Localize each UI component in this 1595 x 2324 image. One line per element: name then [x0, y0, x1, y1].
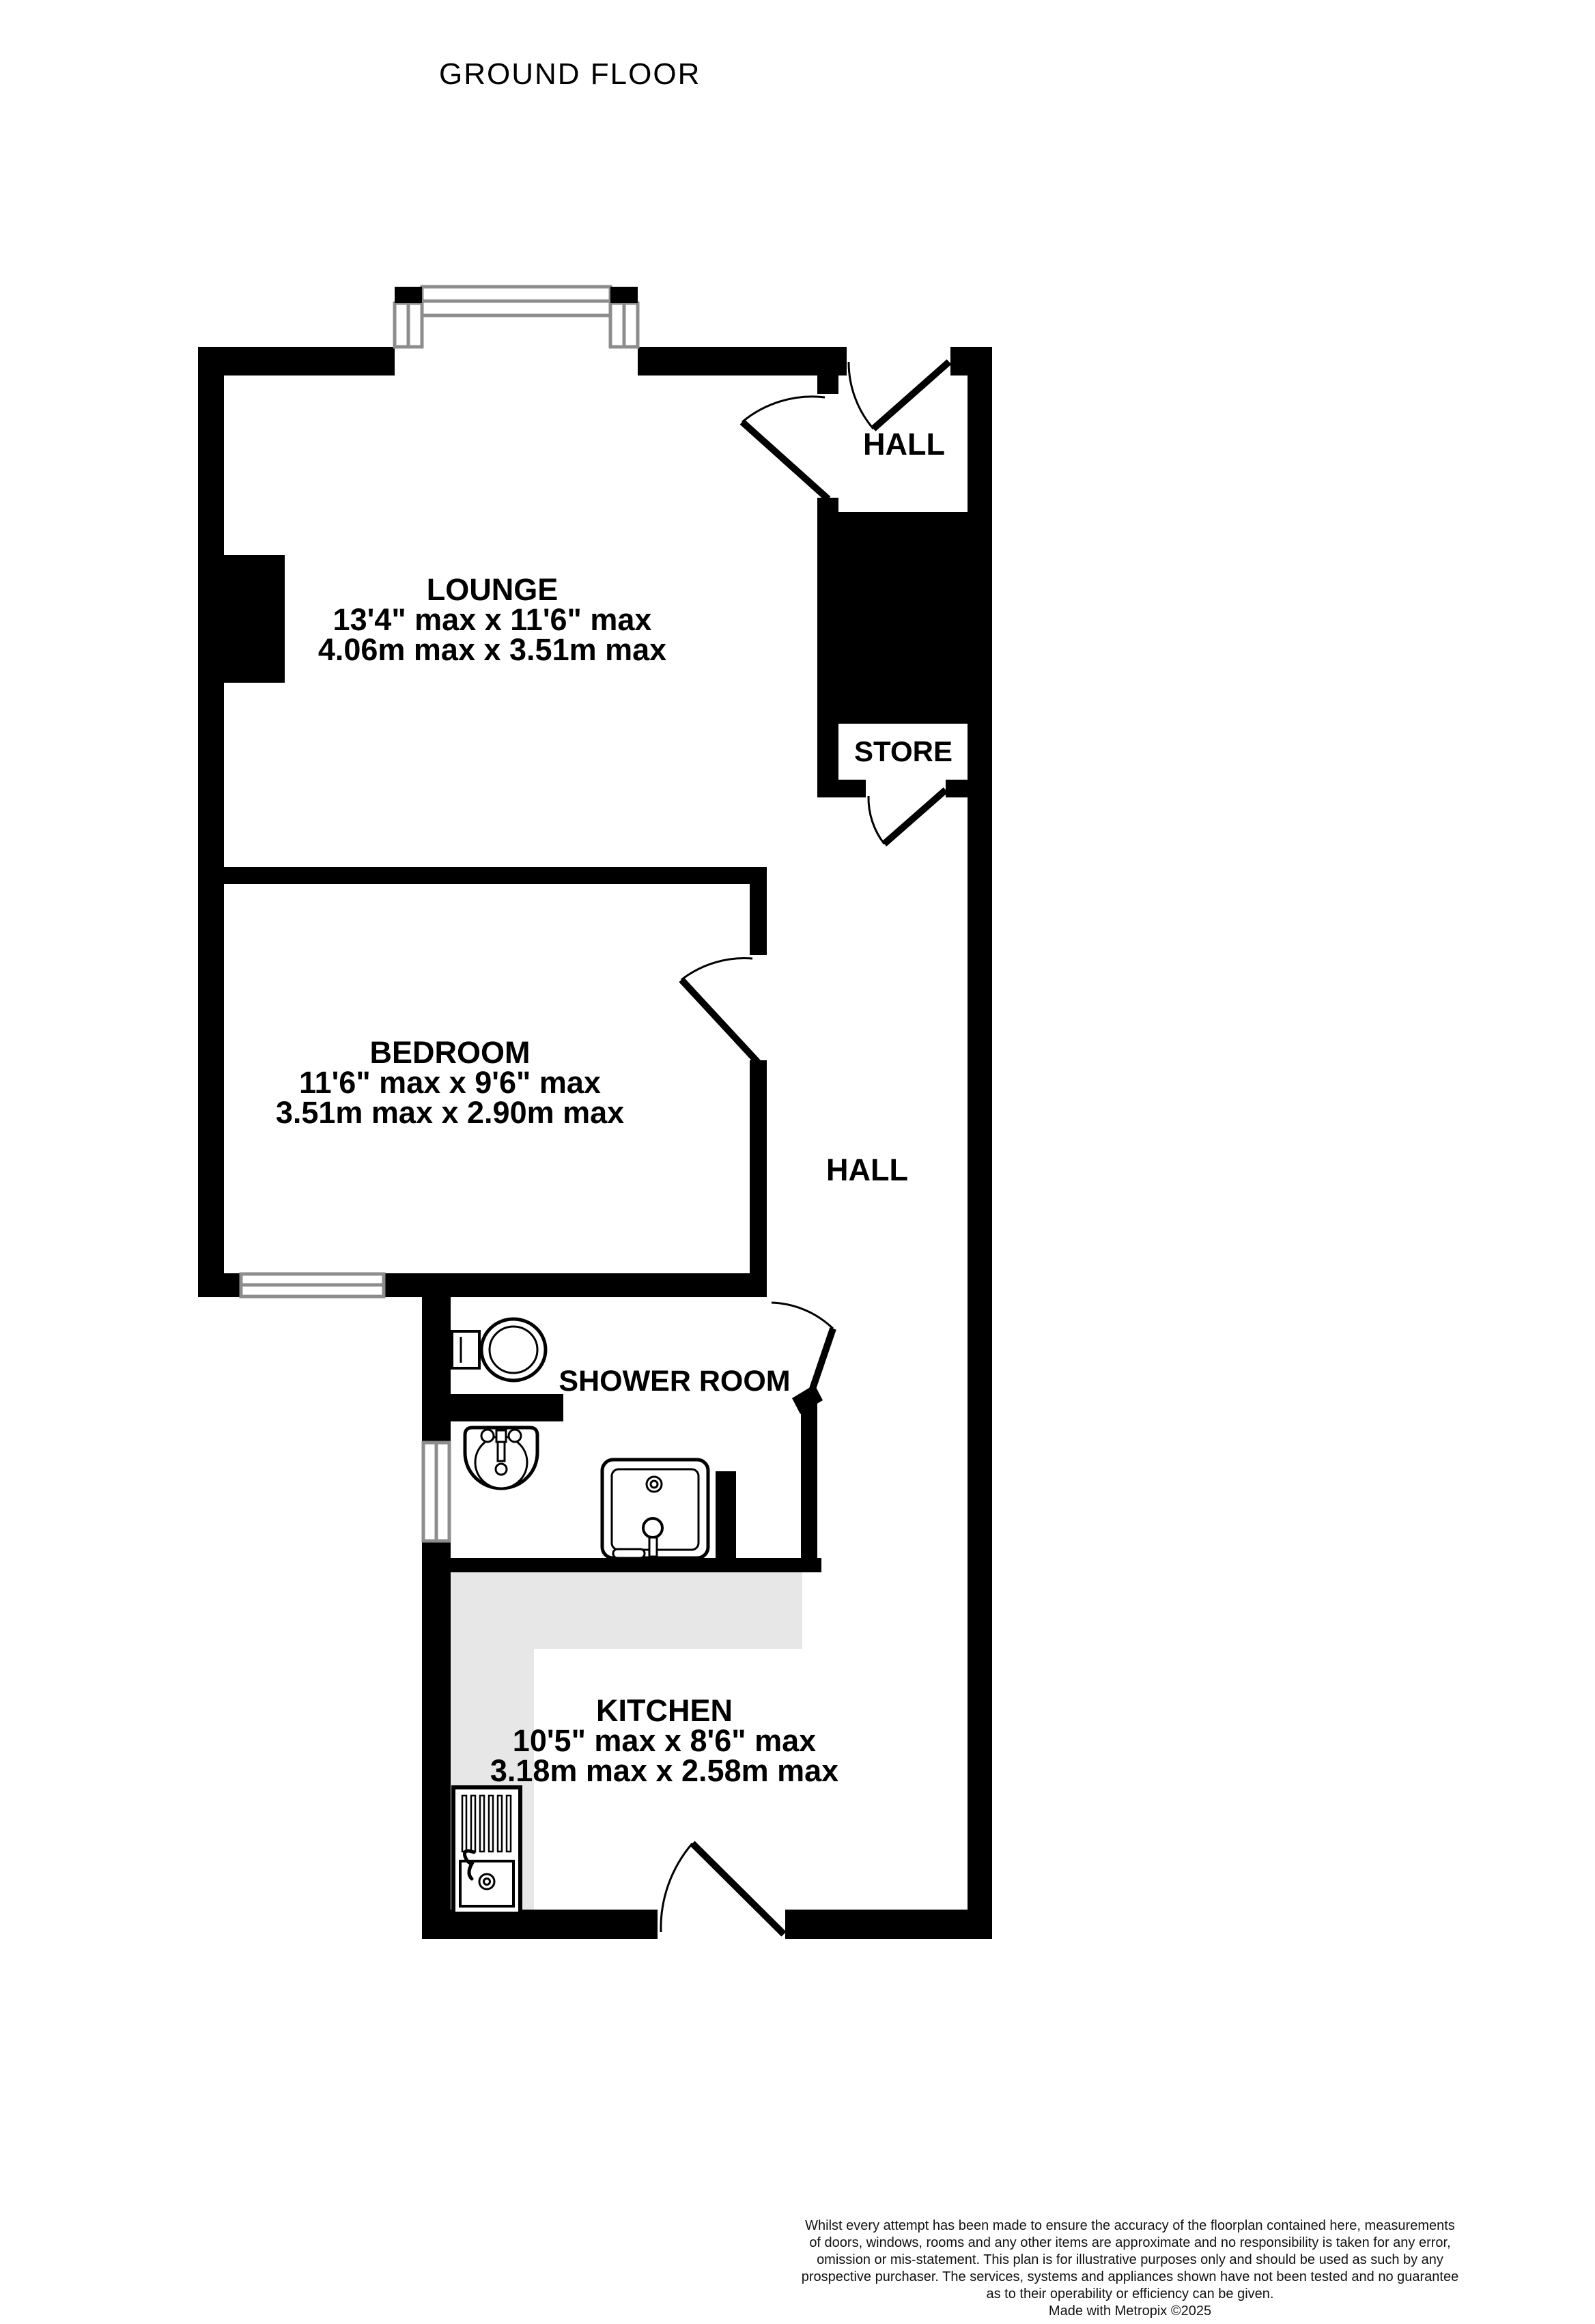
floorplan-drawing: [0, 0, 1595, 2324]
bedroom-door-icon: [681, 959, 758, 1062]
room-name: BEDROOM: [276, 1038, 624, 1068]
room-size-imperial: 10'5" max x 8'6" max: [490, 1726, 838, 1756]
room-label-lounge: LOUNGE 13'4" max x 11'6" max 4.06m max x…: [318, 575, 666, 665]
disclaimer: Whilst every attempt has been made to en…: [734, 2217, 1526, 2320]
bedroom-window-icon: [241, 1274, 384, 1296]
bay-window-icon: [395, 287, 638, 347]
room-name: LOUNGE: [318, 575, 666, 605]
washbasin-icon: [465, 1428, 537, 1488]
shower-window-icon: [423, 1443, 449, 1541]
room-size-imperial: 11'6" max x 9'6" max: [276, 1068, 624, 1098]
kitchen-door-icon: [661, 1843, 784, 1934]
room-size-metric: 3.51m max x 2.90m max: [276, 1098, 624, 1128]
shower-tray-icon: [602, 1460, 708, 1558]
room-name: STORE: [854, 737, 952, 767]
room-size-metric: 4.06m max x 3.51m max: [318, 635, 666, 665]
room-label-bedroom: BEDROOM 11'6" max x 9'6" max 3.51m max x…: [276, 1038, 624, 1128]
solid-wall-block: [817, 512, 968, 724]
disclaimer-line: omission or mis-statement. This plan is …: [734, 2252, 1526, 2269]
lounge-door-icon: [742, 397, 828, 499]
room-label-kitchen: KITCHEN 10'5" max x 8'6" max 3.18m max x…: [490, 1696, 838, 1786]
disclaimer-line: of doors, windows, rooms and any other i…: [734, 2235, 1526, 2252]
disclaimer-line: prospective purchaser. The services, sys…: [734, 2269, 1526, 2286]
store-door-icon: [869, 790, 946, 844]
kitchen-sink-icon: [453, 1787, 520, 1914]
room-name: HALL: [863, 429, 945, 459]
room-label-store: STORE: [854, 737, 952, 767]
metropix-credit: Made with Metropix ©2025: [734, 2303, 1526, 2320]
room-size-metric: 3.18m max x 2.58m max: [490, 1756, 838, 1786]
room-label-hall: HALL: [826, 1155, 908, 1185]
room-size-imperial: 13'4" max x 11'6" max: [318, 605, 666, 635]
disclaimer-line: Whilst every attempt has been made to en…: [734, 2217, 1526, 2235]
room-name: HALL: [826, 1155, 908, 1185]
room-name: KITCHEN: [490, 1696, 838, 1726]
toilet-icon: [452, 1319, 546, 1380]
room-label-shower-room: SHOWER ROOM: [559, 1366, 790, 1396]
room-name: SHOWER ROOM: [559, 1366, 790, 1396]
entrance-door-icon: [849, 362, 949, 429]
disclaimer-line: as to their operability or efficiency ca…: [734, 2286, 1526, 2303]
chimney-breast: [224, 555, 285, 683]
floorplan-page: GROUND FLOOR: [0, 0, 1595, 2324]
room-label-hall-top: HALL: [863, 429, 945, 459]
